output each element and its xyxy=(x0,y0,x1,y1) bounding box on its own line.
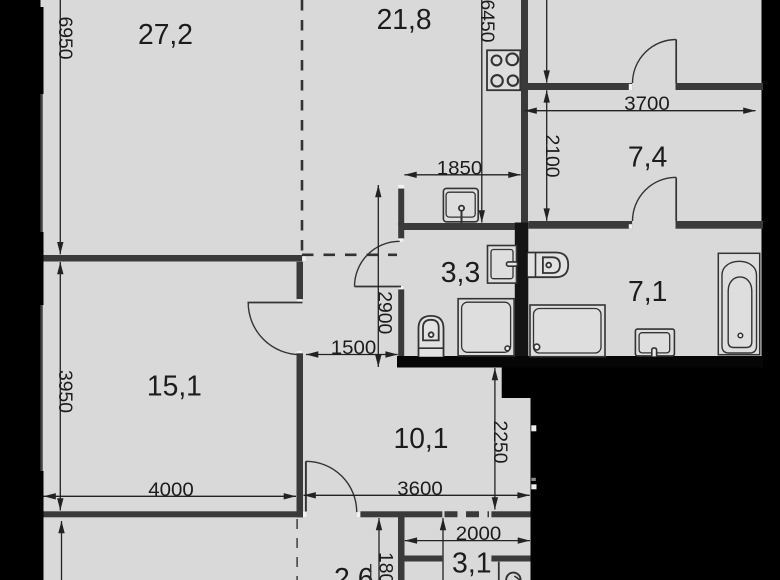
svg-text:3700: 3700 xyxy=(624,93,670,115)
svg-text:6950: 6950 xyxy=(54,17,76,60)
svg-text:3,1: 3,1 xyxy=(452,547,492,579)
svg-text:15,1: 15,1 xyxy=(147,370,202,402)
svg-text:27,2: 27,2 xyxy=(138,19,193,51)
svg-text:7,4: 7,4 xyxy=(628,141,668,173)
svg-text:4000: 4000 xyxy=(148,479,194,501)
svg-text:6450: 6450 xyxy=(476,0,498,43)
svg-text:1800: 1800 xyxy=(374,552,396,580)
svg-text:3950: 3950 xyxy=(54,370,76,413)
svg-text:3,3: 3,3 xyxy=(441,257,481,289)
svg-text:2250: 2250 xyxy=(489,421,511,464)
svg-text:2100: 2100 xyxy=(541,135,563,178)
svg-text:2000: 2000 xyxy=(456,523,502,545)
svg-text:7,1: 7,1 xyxy=(628,276,668,308)
svg-text:10,1: 10,1 xyxy=(394,423,449,455)
svg-text:2,6: 2,6 xyxy=(334,563,374,580)
svg-text:21,8: 21,8 xyxy=(377,4,432,36)
svg-text:1850: 1850 xyxy=(437,157,483,179)
svg-text:2900: 2900 xyxy=(374,291,396,334)
svg-text:3600: 3600 xyxy=(397,478,443,500)
svg-text:1500: 1500 xyxy=(331,337,377,359)
